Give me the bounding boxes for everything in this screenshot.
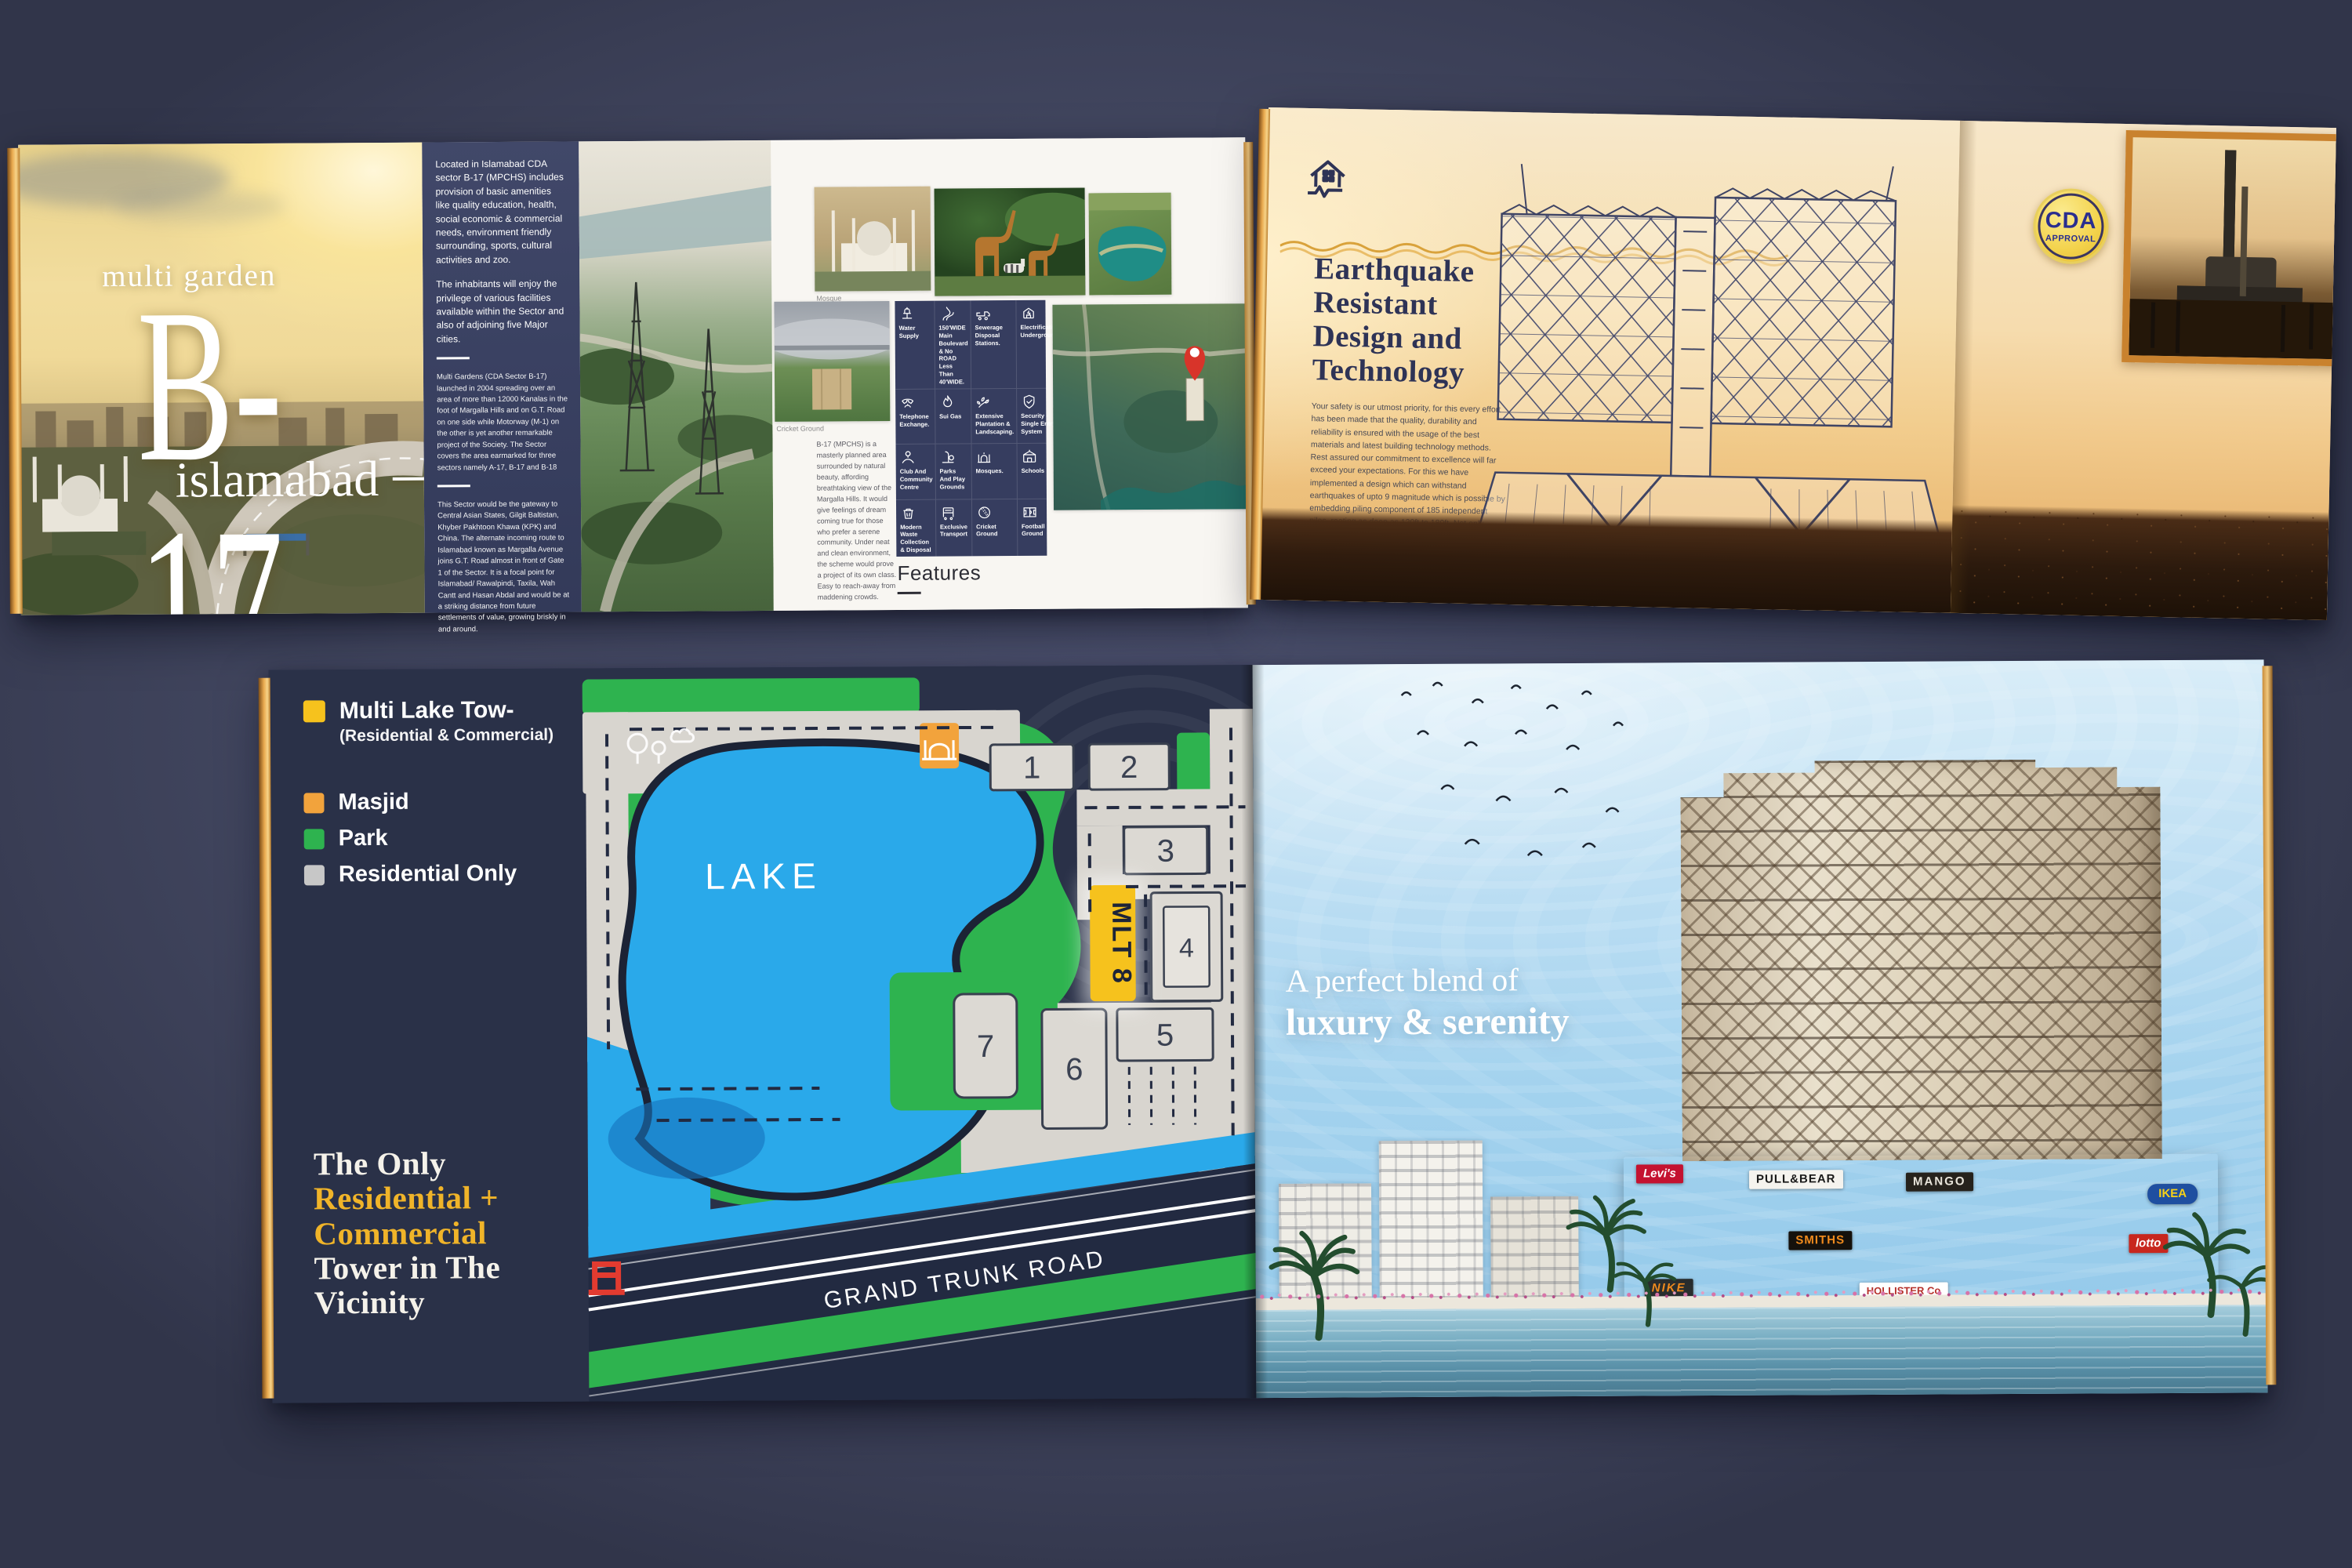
- legend-swatch-tower: [303, 700, 325, 722]
- vicinity-tagline: The Only Residential + Commercial Tower …: [314, 1145, 501, 1320]
- hero-line-2: luxury & serenity: [1286, 1000, 1570, 1044]
- zoo-photo: [935, 187, 1086, 296]
- park-tree-icon: [939, 449, 956, 466]
- map-legend: Multi Lake Tow- (Residential & Commercia…: [303, 697, 554, 888]
- earthquake-heading-line: Resistant: [1313, 286, 1474, 323]
- mlt8-label: MLT 8: [1106, 902, 1137, 985]
- desk-surface: multi garden B-17 islamabad Located in I…: [0, 0, 2352, 1568]
- collage-page: Mosque: [771, 137, 1248, 611]
- cover-title: B-17: [136, 274, 328, 615]
- legend-item-residential: Residential Only: [304, 861, 554, 888]
- levis-sign: Levi's: [1636, 1164, 1683, 1183]
- reservoir-photo: [1089, 193, 1172, 296]
- earthquake-heading-line: Technology: [1312, 354, 1472, 390]
- building: [1379, 1141, 1483, 1301]
- hero-line-1: A perfect blend of: [1286, 960, 1570, 1001]
- intro-paragraph-4: This Sector would be the gateway to Cent…: [437, 499, 570, 636]
- brochure-spread-map: LAKE 1 2 3 4 5 6 7 MLT 8 GRAND TRUNK ROA…: [269, 659, 2268, 1403]
- waterfront: [1256, 1305, 2268, 1398]
- feature-sewerage: Sewerage Disposal Stations.: [971, 300, 1017, 389]
- tagline-line: Residential +: [314, 1180, 500, 1216]
- plot-number: 3: [1157, 834, 1174, 869]
- feature-plantation: Extensive Plantation & Landscaping.: [971, 389, 1017, 445]
- cda-approval-badge: CDA APPROVAL: [2033, 188, 2110, 265]
- lotto-sign: lotto: [2129, 1234, 2169, 1253]
- electrification-icon: [1020, 305, 1036, 321]
- earthquake-flap: CDA APPROVAL: [1951, 121, 2336, 620]
- tagline-line: Vicinity: [314, 1284, 501, 1320]
- bird-flock: [1370, 670, 1669, 891]
- cover-subtitle: islamabad: [176, 449, 425, 509]
- pullandbear-sign: PULL&BEAR: [1749, 1170, 1843, 1189]
- cricket-caption: Cricket Ground: [776, 425, 824, 434]
- legend-item-park: Park: [304, 825, 554, 852]
- zebra-silhouette: [1004, 259, 1025, 273]
- football-pitch-icon: [1022, 503, 1038, 520]
- feature-club: Club And Community Centre: [896, 445, 936, 500]
- features-heading: Features: [897, 561, 981, 594]
- cda-badge-text: CDA: [2045, 209, 2096, 233]
- brochure-spread-overview: multi garden B-17 islamabad Located in I…: [18, 137, 1248, 615]
- lake-label: LAKE: [705, 855, 822, 897]
- about-paragraph: B-17 (MPCHS) is a masterly planned area …: [816, 439, 897, 604]
- legend-primary: Multi Lake Tow-: [303, 697, 554, 724]
- panel-divider: [437, 357, 470, 359]
- plot-number: 5: [1156, 1018, 1174, 1053]
- tagline-line: The Only: [314, 1145, 500, 1181]
- plot-number: 2: [1120, 750, 1138, 785]
- mlt8-tower-facade: [1680, 759, 2162, 1161]
- scrubland-photo: [1951, 505, 2329, 620]
- smiths-sign: SMITHS: [1788, 1231, 1852, 1250]
- park-aerial-photo: [579, 140, 774, 612]
- plot-number: 6: [1065, 1052, 1083, 1087]
- hero-tagline: A perfect blend of luxury & serenity: [1286, 960, 1570, 1044]
- sewerage-truck-icon: [975, 305, 991, 321]
- feature-water-supply: Water Supply: [895, 301, 935, 390]
- mosque-dome-icon: [975, 448, 992, 465]
- title-rule: [393, 477, 425, 481]
- plot-number: 1: [1023, 751, 1040, 786]
- intro-paragraph-1: Located in Islamabad CDA sector B-17 (MP…: [435, 158, 568, 267]
- building: [1490, 1196, 1579, 1301]
- cover-titles: multi garden B-17 islamabad: [18, 143, 425, 615]
- legend-item-masjid: Masjid: [303, 789, 554, 816]
- tagline-line: Commercial: [314, 1215, 500, 1251]
- intro-panel: Located in Islamabad CDA sector B-17 (MP…: [422, 141, 582, 612]
- legend-primary-label: Multi Lake Tow-: [339, 697, 514, 724]
- feature-sui-gas: Sui Gas: [935, 389, 972, 445]
- panel-divider: [437, 485, 470, 487]
- security-shield-icon: [1021, 394, 1037, 410]
- feature-waste: Modern Waste Collection & Disposal: [896, 499, 936, 557]
- tagline-line: Tower in The: [314, 1250, 500, 1286]
- location-aerial-photo: [1052, 303, 1247, 510]
- boulevard-road-icon: [938, 305, 955, 321]
- telephone-icon: [899, 394, 916, 411]
- sui-gas-flame-icon: [939, 394, 956, 410]
- brochure-spread-earthquake: Earthquake Resistant Design and Technolo…: [1259, 107, 2336, 620]
- soil-band: [1259, 507, 1952, 613]
- legend-primary-sub: (Residential & Commercial): [339, 726, 554, 746]
- earthquake-heading-line: Earthquake: [1314, 252, 1475, 289]
- bus-icon: [940, 504, 956, 521]
- fold-shadow: [1241, 665, 1269, 1398]
- waste-bin-icon: [900, 504, 916, 521]
- plantation-icon: [975, 394, 992, 410]
- legend-swatch-park: [304, 829, 325, 849]
- cricket-stadium-photo: [774, 301, 890, 422]
- piling-rig-photo: [2122, 130, 2336, 366]
- mosque-photo: [815, 187, 931, 292]
- earthquake-page: Earthquake Resistant Design and Technolo…: [1259, 107, 1960, 613]
- transmission-tower-icon: [619, 281, 724, 494]
- cover-subtitle-text: islamabad: [176, 450, 379, 510]
- feature-telephone: Telephone Exchange.: [895, 390, 935, 445]
- school-building-icon: [1021, 448, 1037, 465]
- feature-cricket: Cricket Ground: [972, 499, 1018, 557]
- community-hands-icon: [900, 449, 916, 466]
- waterfront-buildings: [1279, 1131, 1617, 1308]
- ikea-sign: IKEA: [2147, 1184, 2198, 1204]
- cover-page: multi garden B-17 islamabad: [18, 143, 425, 615]
- plot-number: 4: [1179, 933, 1194, 963]
- earthquake-house-icon: [1303, 152, 1352, 201]
- feature-parks: Parks And Play Grounds: [935, 445, 972, 500]
- feature-transport: Exclusive Transport: [936, 499, 973, 557]
- site-map-page: LAKE 1 2 3 4 5 6 7 MLT 8 GRAND TRUNK ROA…: [269, 665, 1257, 1403]
- plot-number: 7: [977, 1029, 994, 1064]
- earthquake-heading: Earthquake Resistant Design and Technolo…: [1312, 252, 1475, 390]
- features-panel: Water Supply 150'WIDE Main Boulevard & N…: [895, 300, 1047, 557]
- mango-sign: MANGO: [1906, 1172, 1973, 1191]
- legend-swatch-residential: [304, 865, 325, 885]
- feature-mosques: Mosques.: [971, 444, 1017, 499]
- building: [1279, 1183, 1372, 1301]
- intro-paragraph-3: Multi Gardens (CDA Sector B-17) launched…: [437, 372, 569, 474]
- feature-boulevard: 150'WIDE Main Boulevard & No ROAD Less T…: [935, 300, 971, 389]
- legend-swatch-masjid: [303, 793, 324, 813]
- intro-paragraph-2: The inhabitants will enjoy the privilege…: [436, 278, 568, 347]
- hero-page: A perfect blend of luxury & serenity Lev…: [1253, 659, 2268, 1398]
- cricket-ball-icon: [976, 504, 993, 521]
- cda-badge-subtext: APPROVAL: [2045, 234, 2096, 244]
- water-supply-icon: [898, 306, 915, 322]
- earthquake-heading-line: Design and: [1312, 320, 1473, 357]
- location-pin-icon: [1185, 346, 1206, 380]
